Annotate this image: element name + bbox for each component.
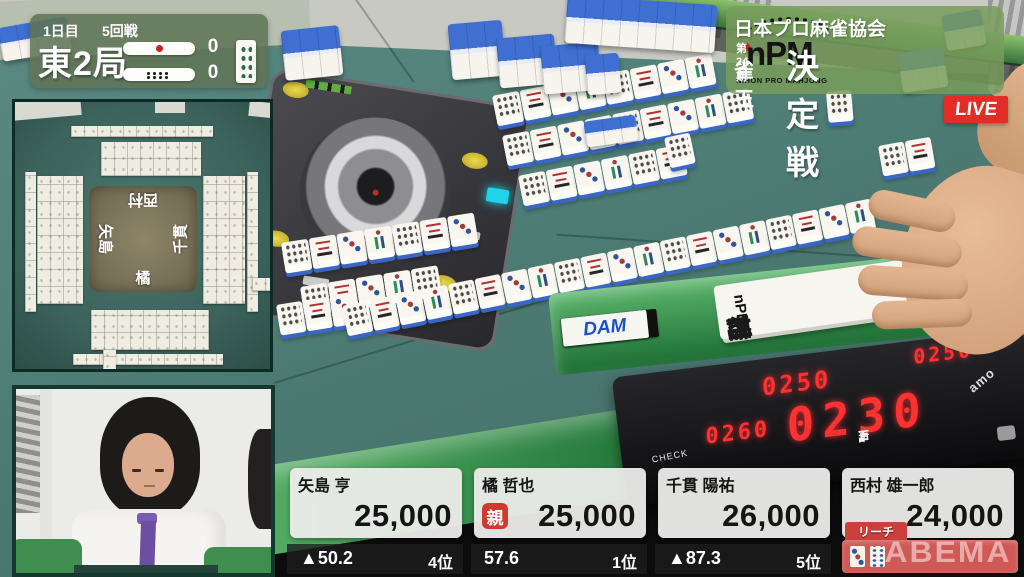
- mahjong-tile: [573, 160, 604, 189]
- mahjong-tile: [276, 301, 305, 329]
- player-camera-view: [12, 385, 275, 577]
- mahjong-tile: [342, 301, 372, 330]
- mahjong-tile: [364, 226, 394, 254]
- mahjong-tile: [395, 290, 425, 319]
- indicator-screen: [486, 187, 510, 204]
- mahjong-tile: [657, 59, 688, 88]
- mahjong-tile: [600, 155, 631, 184]
- camera-bg-detail: [16, 395, 42, 513]
- discard-tile-row: [878, 137, 937, 182]
- honba-count: 0: [203, 36, 223, 58]
- minimap-bg-detail: [155, 102, 185, 113]
- stat-bar-yajima: ▲50.2 4位: [287, 544, 463, 574]
- mahjong-tile: [303, 297, 332, 325]
- mahjong-tile: [686, 231, 716, 260]
- mahjong-tile: [639, 104, 670, 133]
- camera-bg-detail: [74, 565, 218, 577]
- riichi-stick-count: 0: [203, 62, 223, 84]
- stat-bar-tachibana: 57.6 1位: [471, 544, 647, 574]
- player-name: 西村 雄一郎: [850, 472, 934, 496]
- player-mouth: [144, 485, 155, 487]
- minimap-seat-right: 千貫: [169, 224, 190, 254]
- player-score: 25,000: [538, 498, 636, 534]
- player-face: [122, 433, 174, 497]
- mahjong-tile: [628, 149, 659, 178]
- mahjong-tile: [667, 99, 698, 128]
- amos-brand-logo: amo: [965, 365, 997, 396]
- live-badge: LIVE: [944, 96, 1008, 123]
- minimap-wall-bottom: [73, 354, 223, 365]
- mahjong-tile: [684, 53, 715, 82]
- honba-stick-icon: [123, 42, 195, 55]
- face-down-tile-stack: [281, 25, 344, 81]
- mahjong-tile: [818, 204, 848, 233]
- mahjong-tile: [336, 230, 366, 258]
- panel-emblem: [997, 425, 1017, 441]
- mahjong-tile: [545, 166, 576, 195]
- player-name: 千貫 陽祐: [666, 472, 734, 496]
- score-panel-yajima: 矢島 亨 25,000: [290, 468, 462, 538]
- minimap-seat-left: 矢島: [96, 224, 117, 254]
- broadcast-frame: 17LIVE ALL★SIRIUS DAM nPM 西 村 雄 一 郎 CHEC…: [0, 0, 1024, 577]
- mahjong-tile: [580, 252, 610, 281]
- table-overhead-minimap: 西村 千貫 橘 矢島: [12, 99, 273, 372]
- minimap-discards-bottom: [91, 310, 209, 350]
- player-rank: 5位: [796, 549, 821, 573]
- minimap-center: 西村 千貫 橘 矢島: [89, 186, 197, 292]
- mahjong-tile: [739, 220, 769, 249]
- check-label: CHECK: [651, 448, 689, 465]
- title-janou: 雀王: [734, 54, 754, 112]
- riichi-stick-icon: [123, 68, 195, 81]
- title-finals: 決定戦: [786, 40, 819, 184]
- mahjong-tile: [501, 269, 531, 298]
- minimap-wall-left: [25, 172, 36, 312]
- mahjong-tile: [447, 212, 477, 240]
- mahjong-tile: [554, 258, 584, 287]
- minimap-discards-left: [37, 176, 83, 304]
- mahjong-tile: [527, 263, 557, 292]
- riichi-tile-icon: [850, 546, 865, 567]
- score-panel-chinuki: 千貫 陽祐 26,000: [658, 468, 830, 538]
- minimap-discards-top: [101, 142, 201, 176]
- player-rank: 4位: [428, 549, 453, 573]
- player-points-diff: 57.6: [484, 548, 519, 569]
- mahjong-tile: [421, 285, 451, 314]
- tournament-logo-panel: nPM NIHON PRO MAHJONG 日本プロ麻雀協会 第24期 雀王 決…: [726, 6, 1004, 94]
- mahjong-tile: [281, 239, 311, 267]
- minimap-wall-top: [71, 126, 213, 137]
- second-person-hair: [248, 429, 275, 529]
- face-down-tile-stack: [584, 53, 621, 96]
- minimap-seat-top: 西村: [128, 190, 158, 211]
- mahjong-tile: [419, 217, 449, 245]
- mahjong-tile: [518, 171, 549, 200]
- chair-back: [12, 539, 82, 577]
- mahjong-tile: [474, 274, 504, 303]
- mahjong-tile: [309, 234, 339, 262]
- mahjong-tile: [664, 133, 694, 162]
- minimap-discards-right: [203, 176, 245, 304]
- mahjong-tile: [529, 126, 560, 155]
- minimap-bg-detail: [12, 99, 82, 121]
- mahjong-tile: [765, 215, 795, 244]
- round-info-panel: 1日目 5回戦 東2局 0 0: [30, 14, 268, 88]
- camera-bg-detail: [40, 389, 52, 539]
- stat-bar-chinuki: ▲87.3 5位: [655, 544, 831, 574]
- player-score: 24,000: [906, 498, 1004, 534]
- mahjong-tile: [368, 295, 398, 324]
- score-panel-tachibana: 橘 哲也 親 25,000: [474, 468, 646, 538]
- player-points-diff: ▲87.3: [668, 548, 721, 569]
- player-name: 橘 哲也: [482, 472, 534, 496]
- mahjong-tile: [492, 91, 523, 120]
- player-score: 25,000: [354, 498, 452, 534]
- mahjong-tile: [712, 225, 742, 254]
- minimap-seat-bottom: 橘: [135, 267, 150, 288]
- dealer-badge: 親: [482, 503, 508, 529]
- player-rank: 1位: [612, 549, 637, 573]
- sponsor-dam: DAM: [561, 310, 649, 347]
- mahjong-tile: [905, 137, 935, 165]
- center-dot: [372, 189, 379, 196]
- abema-watermark: ABEMA: [884, 536, 1011, 570]
- mahjong-tile: [448, 279, 478, 308]
- minimap-side-tile: [252, 278, 273, 291]
- organization-name: 日本プロ麻雀協会: [734, 14, 886, 41]
- finger: [872, 298, 973, 329]
- player-eye: [155, 469, 164, 472]
- mahjong-tile: [633, 242, 663, 271]
- mahjong-tile: [629, 64, 660, 93]
- mahjong-tile: [392, 221, 422, 249]
- riichi-tile-icon: [870, 546, 885, 567]
- mahjong-tile: [792, 209, 822, 238]
- score-readout-left: 0260: [705, 417, 770, 450]
- mahjong-tile: [659, 236, 689, 265]
- mahjong-tile: [694, 93, 725, 122]
- player-points-diff: ▲50.2: [300, 548, 353, 569]
- coin-button: [461, 151, 489, 171]
- minimap-protruding-tile: [103, 350, 116, 372]
- mahjong-tile: [878, 141, 908, 169]
- minimap-bg-detail: [248, 101, 273, 118]
- discard-tile-row: [826, 90, 855, 128]
- minimap-wall-right: [247, 172, 258, 312]
- player-eye: [132, 469, 141, 472]
- mahjong-tile: [502, 131, 533, 160]
- dora-indicator-tile: [236, 40, 256, 83]
- player-score: 26,000: [722, 498, 820, 534]
- mahjong-tile: [607, 247, 637, 276]
- indicator-lights: [305, 79, 352, 94]
- player-name: 矢島 亨: [298, 472, 350, 496]
- kyoku-label: 東2局: [38, 36, 128, 85]
